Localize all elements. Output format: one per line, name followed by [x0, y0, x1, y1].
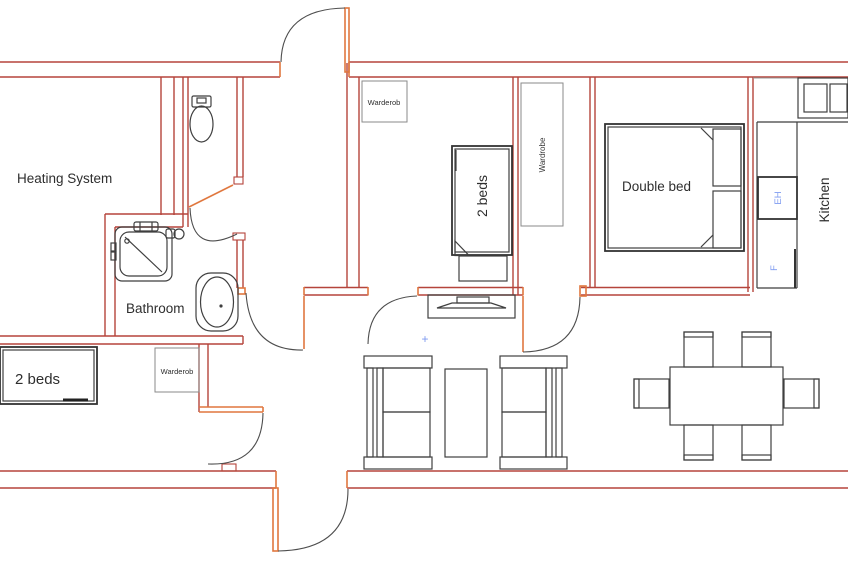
sofa-right-armrest-bottom	[500, 457, 567, 469]
wardrobe-hall-label: Warderob	[161, 367, 194, 376]
hall-bottom-wall-caps	[304, 287, 368, 296]
bed-middle: 2 beds	[452, 146, 512, 281]
living-room-top-wall	[581, 288, 750, 296]
double-bed-pillow-bottom	[713, 191, 741, 248]
toilet-niche-right-wall	[237, 77, 243, 177]
sofa-left-armrest-bottom	[364, 457, 432, 469]
bottom-wall-opening-caps	[276, 471, 347, 488]
left-bedroom-right-wall	[199, 344, 208, 412]
corridor-door-swing	[523, 297, 580, 352]
chair-back	[814, 379, 819, 408]
coffee-table	[445, 369, 487, 457]
double-bed: Double bed	[605, 124, 744, 251]
heating-room-label: Heating System	[17, 171, 112, 186]
dining-table	[670, 367, 783, 425]
chair-back	[684, 455, 713, 460]
bottom-wall	[0, 471, 848, 488]
middle-bedroom-bottom-wall	[418, 288, 523, 296]
bed-middle-fold	[455, 241, 469, 256]
shower-diagonal	[125, 237, 162, 272]
middle-bedroom-bottom-wall-caps	[418, 287, 523, 296]
hob-label: EH	[773, 191, 784, 204]
interior-walls	[0, 63, 753, 412]
kitchen-label: Kitchen	[817, 177, 832, 222]
middle-bedroom-right-wall	[513, 77, 518, 295]
bathtub	[196, 273, 238, 331]
double-bed-fold-bottom	[701, 235, 713, 247]
top-wall-opening-caps	[280, 62, 349, 77]
chair-back	[684, 332, 713, 337]
sofa-right-seat-bottom	[502, 412, 546, 457]
bathroom-door-jamb-top	[233, 233, 245, 240]
chair-back	[742, 455, 771, 460]
wardrobe-corridor-label: Wardrobe	[538, 137, 547, 172]
tv-base	[457, 297, 489, 303]
double-bed-label: Double bed	[622, 179, 691, 194]
sofa-right-seat-top	[502, 368, 546, 412]
sofa-right-back-inner	[546, 368, 552, 457]
double-bed-pillow-top	[713, 129, 741, 186]
hall-spine-wall	[347, 63, 359, 287]
toilet-door-leaf	[189, 185, 233, 207]
wardrobe-bedroom-label: Warderob	[368, 98, 401, 107]
bed-middle-label: 2 beds	[474, 175, 490, 217]
dining-chair-right	[784, 379, 819, 408]
center-mark: +	[421, 332, 428, 346]
hall-bottom-wall-segment	[304, 288, 368, 296]
chair-back	[742, 332, 771, 337]
bathroom-right-wall	[237, 240, 243, 288]
bathtub-drain	[219, 304, 222, 307]
sofa-left-seat-bottom	[383, 412, 430, 457]
toilet-niche-wall-cap	[234, 177, 243, 184]
tv-stand	[428, 295, 515, 318]
bathroom-top-wall	[105, 214, 188, 227]
dining-chair-top-left	[684, 332, 713, 367]
sofa-right-back-outer	[556, 368, 562, 457]
tv-screen	[437, 303, 506, 308]
left-bedroom-door-leaf	[199, 407, 263, 412]
toilet-niche-left-wall	[183, 77, 188, 227]
wardrobe-corridor: Wardrobe	[521, 83, 563, 226]
fridge-label: F	[769, 265, 780, 271]
floor-plan-page: 2 beds 2 beds Double bed Warderob Warder…	[0, 0, 848, 565]
entrance-door-swing-top	[281, 8, 345, 62]
toilet	[190, 96, 213, 142]
bathtub-basin	[201, 277, 234, 327]
dining-chair-bottom-left	[684, 425, 713, 460]
bathroom-hall-door-swing	[246, 293, 303, 350]
double-bedroom-left-wall	[590, 77, 595, 288]
heating-bathroom-bottom-wall	[0, 336, 243, 344]
kitchen-area: EH F Kitchen	[753, 78, 848, 288]
bed-left-label: 2 beds	[15, 371, 60, 388]
sofa-left-armrest-top	[364, 356, 432, 368]
heating-room-right-wall	[161, 77, 174, 215]
exterior-walls	[0, 62, 848, 488]
bathroom-left-wall	[105, 214, 115, 336]
entrance-door-leaf-bottom	[273, 488, 278, 551]
toilet-door-swing	[190, 208, 237, 241]
shower	[111, 222, 184, 281]
bathroom-door-jamb-bottom	[238, 288, 245, 294]
bottom-wall-door-stop	[222, 464, 236, 471]
dining-chair-bottom-right	[742, 425, 771, 460]
sofa-left-back-outer	[367, 368, 373, 457]
kitchen-sink-basin-left	[804, 84, 827, 112]
bathroom-label: Bathroom	[126, 301, 185, 316]
floor-plan-drawing: 2 beds 2 beds Double bed Warderob Warder…	[0, 0, 848, 565]
kitchen-counter-lines	[757, 122, 848, 288]
entrance-door-leaf-top	[345, 8, 349, 72]
kitchen-divider-wall	[748, 77, 753, 292]
dining-set	[634, 332, 819, 460]
top-wall	[0, 62, 848, 77]
wardrobe-bedroom: Warderob	[362, 81, 407, 122]
left-bedroom-door-swing	[208, 413, 263, 464]
entrance-door-swing-bottom	[278, 489, 348, 551]
double-bed-fold-top	[701, 128, 713, 140]
dining-chair-left	[634, 379, 669, 408]
bathtub-rim	[196, 273, 238, 331]
sofa-right	[500, 356, 567, 469]
kitchen-sink-basin-right	[830, 84, 847, 112]
chair-back	[634, 379, 639, 408]
sofa-left-seat-top	[383, 368, 430, 412]
dining-chair-top-right	[742, 332, 771, 367]
middle-bedroom-door-swing	[368, 296, 417, 344]
toilet-bowl	[190, 106, 213, 142]
sofa-left	[364, 356, 432, 469]
sofa-left-back-inner	[377, 368, 383, 457]
bed-left: 2 beds	[0, 347, 97, 404]
toilet-tank-lid	[197, 98, 206, 103]
bed-middle-pillow	[459, 256, 507, 281]
wardrobe-hall: Warderob	[155, 348, 199, 392]
sofa-right-armrest-top	[500, 356, 567, 368]
